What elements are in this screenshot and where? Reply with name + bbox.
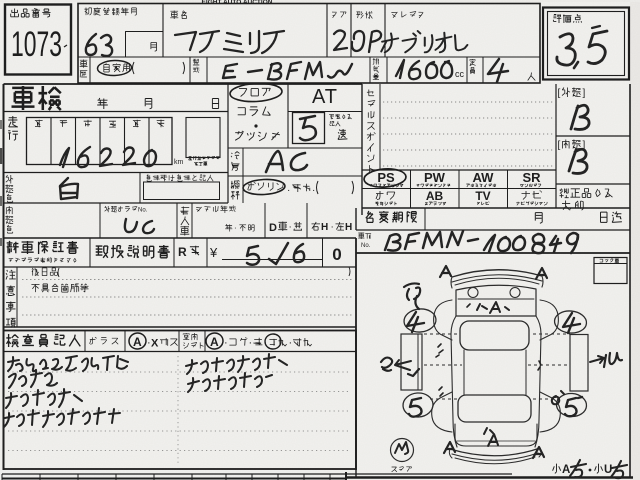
svg-text:·: ·: [287, 185, 290, 196]
svg-text:SR: SR: [522, 170, 541, 185]
svg-text:AW: AW: [473, 170, 495, 185]
svg-text:1073: 1073: [11, 25, 62, 64]
svg-text:D: D: [269, 222, 277, 234]
svg-text:0: 0: [332, 245, 341, 264]
svg-text:·: ·: [312, 185, 315, 196]
svg-text:·: ·: [249, 337, 253, 349]
svg-text:·: ·: [289, 222, 292, 233]
svg-text:[: [: [558, 88, 561, 99]
svg-text:PS: PS: [377, 170, 395, 185]
svg-text:H: H: [345, 222, 352, 233]
svg-text:·: ·: [224, 337, 228, 349]
svg-text:[: [: [558, 140, 561, 151]
svg-text:km: km: [174, 159, 184, 166]
svg-text:·: ·: [289, 337, 293, 349]
svg-text:No.: No.: [138, 208, 148, 214]
svg-text:·: ·: [331, 222, 334, 233]
svg-text:¥: ¥: [209, 245, 218, 260]
svg-text:·: ·: [234, 224, 237, 233]
svg-text:cc: cc: [455, 69, 465, 79]
svg-text:H: H: [321, 222, 328, 233]
svg-text:No.: No.: [361, 243, 371, 249]
svg-text:R: R: [178, 245, 187, 259]
svg-text:U: U: [604, 464, 612, 476]
svg-text:A: A: [133, 335, 142, 349]
svg-text:X: X: [151, 338, 159, 350]
svg-text:AT: AT: [312, 86, 338, 108]
svg-text:AB: AB: [426, 189, 444, 203]
svg-text:A: A: [210, 335, 219, 349]
svg-text:TV: TV: [475, 189, 490, 203]
svg-text:PW: PW: [424, 170, 446, 185]
svg-text:]: ]: [583, 88, 586, 99]
svg-text:A: A: [562, 464, 570, 476]
